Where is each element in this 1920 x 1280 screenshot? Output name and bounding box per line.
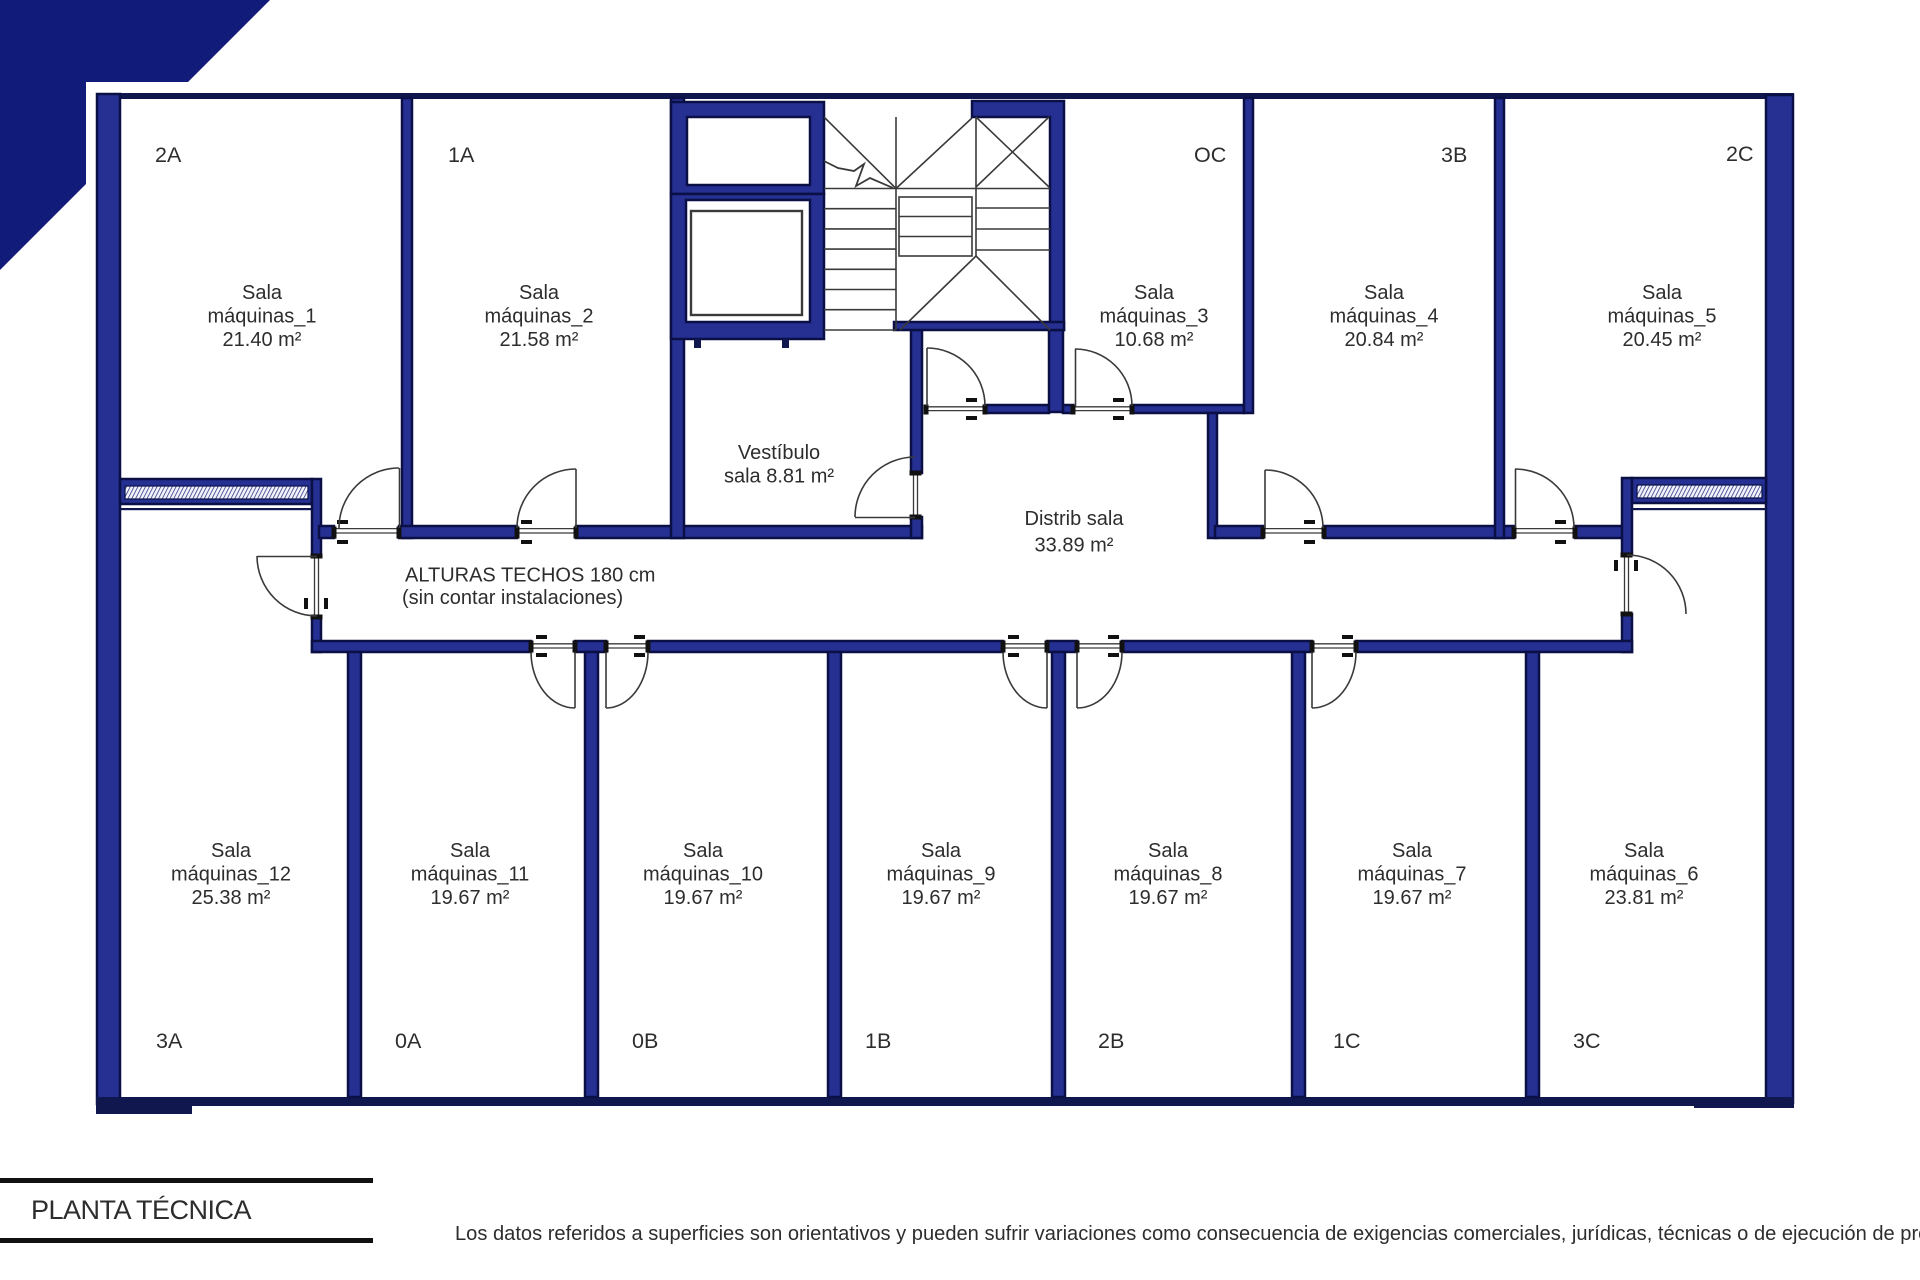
svg-text:19.67 m²: 19.67 m²: [1373, 887, 1452, 909]
svg-text:3A: 3A: [156, 1029, 183, 1053]
svg-text:Sala: Sala: [1364, 282, 1405, 304]
svg-text:Sala: Sala: [1624, 840, 1665, 862]
svg-text:21.40 m²: 21.40 m²: [223, 329, 302, 351]
svg-text:19.67 m²: 19.67 m²: [664, 887, 743, 909]
svg-text:Vestíbulo: Vestíbulo: [738, 442, 820, 464]
svg-text:máquinas_1: máquinas_1: [208, 306, 317, 328]
svg-text:23.81 m²: 23.81 m²: [1605, 887, 1684, 909]
svg-text:máquinas_6: máquinas_6: [1590, 864, 1699, 886]
svg-text:10.68 m²: 10.68 m²: [1115, 329, 1194, 351]
svg-text:Sala: Sala: [921, 840, 962, 862]
svg-text:Sala: Sala: [1148, 840, 1189, 862]
svg-text:1A: 1A: [448, 143, 475, 167]
svg-text:3B: 3B: [1441, 143, 1467, 167]
svg-text:20.45 m²: 20.45 m²: [1623, 329, 1702, 351]
svg-text:OC: OC: [1194, 143, 1226, 167]
svg-text:0B: 0B: [632, 1029, 658, 1053]
svg-text:20.84 m²: 20.84 m²: [1345, 329, 1424, 351]
svg-text:máquinas_7: máquinas_7: [1358, 864, 1467, 886]
svg-text:máquinas_9: máquinas_9: [887, 864, 996, 886]
svg-text:Sala: Sala: [450, 840, 491, 862]
svg-text:Sala: Sala: [242, 282, 283, 304]
svg-text:ALTURAS TECHOS 180 cm: ALTURAS TECHOS 180 cm: [405, 565, 655, 587]
svg-text:máquinas_4: máquinas_4: [1330, 306, 1439, 328]
svg-text:Sala: Sala: [519, 282, 560, 304]
svg-text:Sala: Sala: [1392, 840, 1433, 862]
svg-text:Distrib sala: Distrib sala: [1025, 508, 1125, 530]
svg-text:2A: 2A: [155, 143, 182, 167]
svg-text:máquinas_10: máquinas_10: [643, 864, 763, 886]
svg-text:(sin contar instalaciones): (sin contar instalaciones): [402, 587, 623, 609]
svg-text:máquinas_3: máquinas_3: [1100, 306, 1209, 328]
svg-text:19.67 m²: 19.67 m²: [902, 887, 981, 909]
svg-text:Sala: Sala: [683, 840, 724, 862]
svg-text:Los datos referidos a superfic: Los datos referidos a superficies son or…: [455, 1223, 1920, 1245]
svg-text:33.89 m²: 33.89 m²: [1035, 535, 1114, 557]
svg-text:1B: 1B: [865, 1029, 891, 1053]
svg-text:máquinas_11: máquinas_11: [411, 864, 530, 886]
svg-text:Sala: Sala: [1134, 282, 1175, 304]
svg-text:1C: 1C: [1333, 1029, 1360, 1053]
svg-text:25.38 m²: 25.38 m²: [192, 887, 271, 909]
svg-text:21.58 m²: 21.58 m²: [500, 329, 579, 351]
svg-text:máquinas_5: máquinas_5: [1608, 306, 1717, 328]
svg-text:Sala: Sala: [1642, 282, 1683, 304]
svg-text:0A: 0A: [395, 1029, 422, 1053]
svg-text:19.67 m²: 19.67 m²: [431, 887, 510, 909]
svg-text:máquinas_2: máquinas_2: [485, 306, 594, 328]
svg-text:2C: 2C: [1726, 142, 1753, 166]
svg-text:máquinas_8: máquinas_8: [1114, 864, 1223, 886]
svg-text:3C: 3C: [1573, 1029, 1600, 1053]
svg-text:máquinas_12: máquinas_12: [171, 864, 291, 886]
svg-text:2B: 2B: [1098, 1029, 1124, 1053]
svg-text:PLANTA TÉCNICA: PLANTA TÉCNICA: [31, 1195, 252, 1225]
svg-text:Sala: Sala: [211, 840, 252, 862]
svg-text:19.67 m²: 19.67 m²: [1129, 887, 1208, 909]
svg-text:sala 8.81 m²: sala 8.81 m²: [724, 466, 834, 488]
